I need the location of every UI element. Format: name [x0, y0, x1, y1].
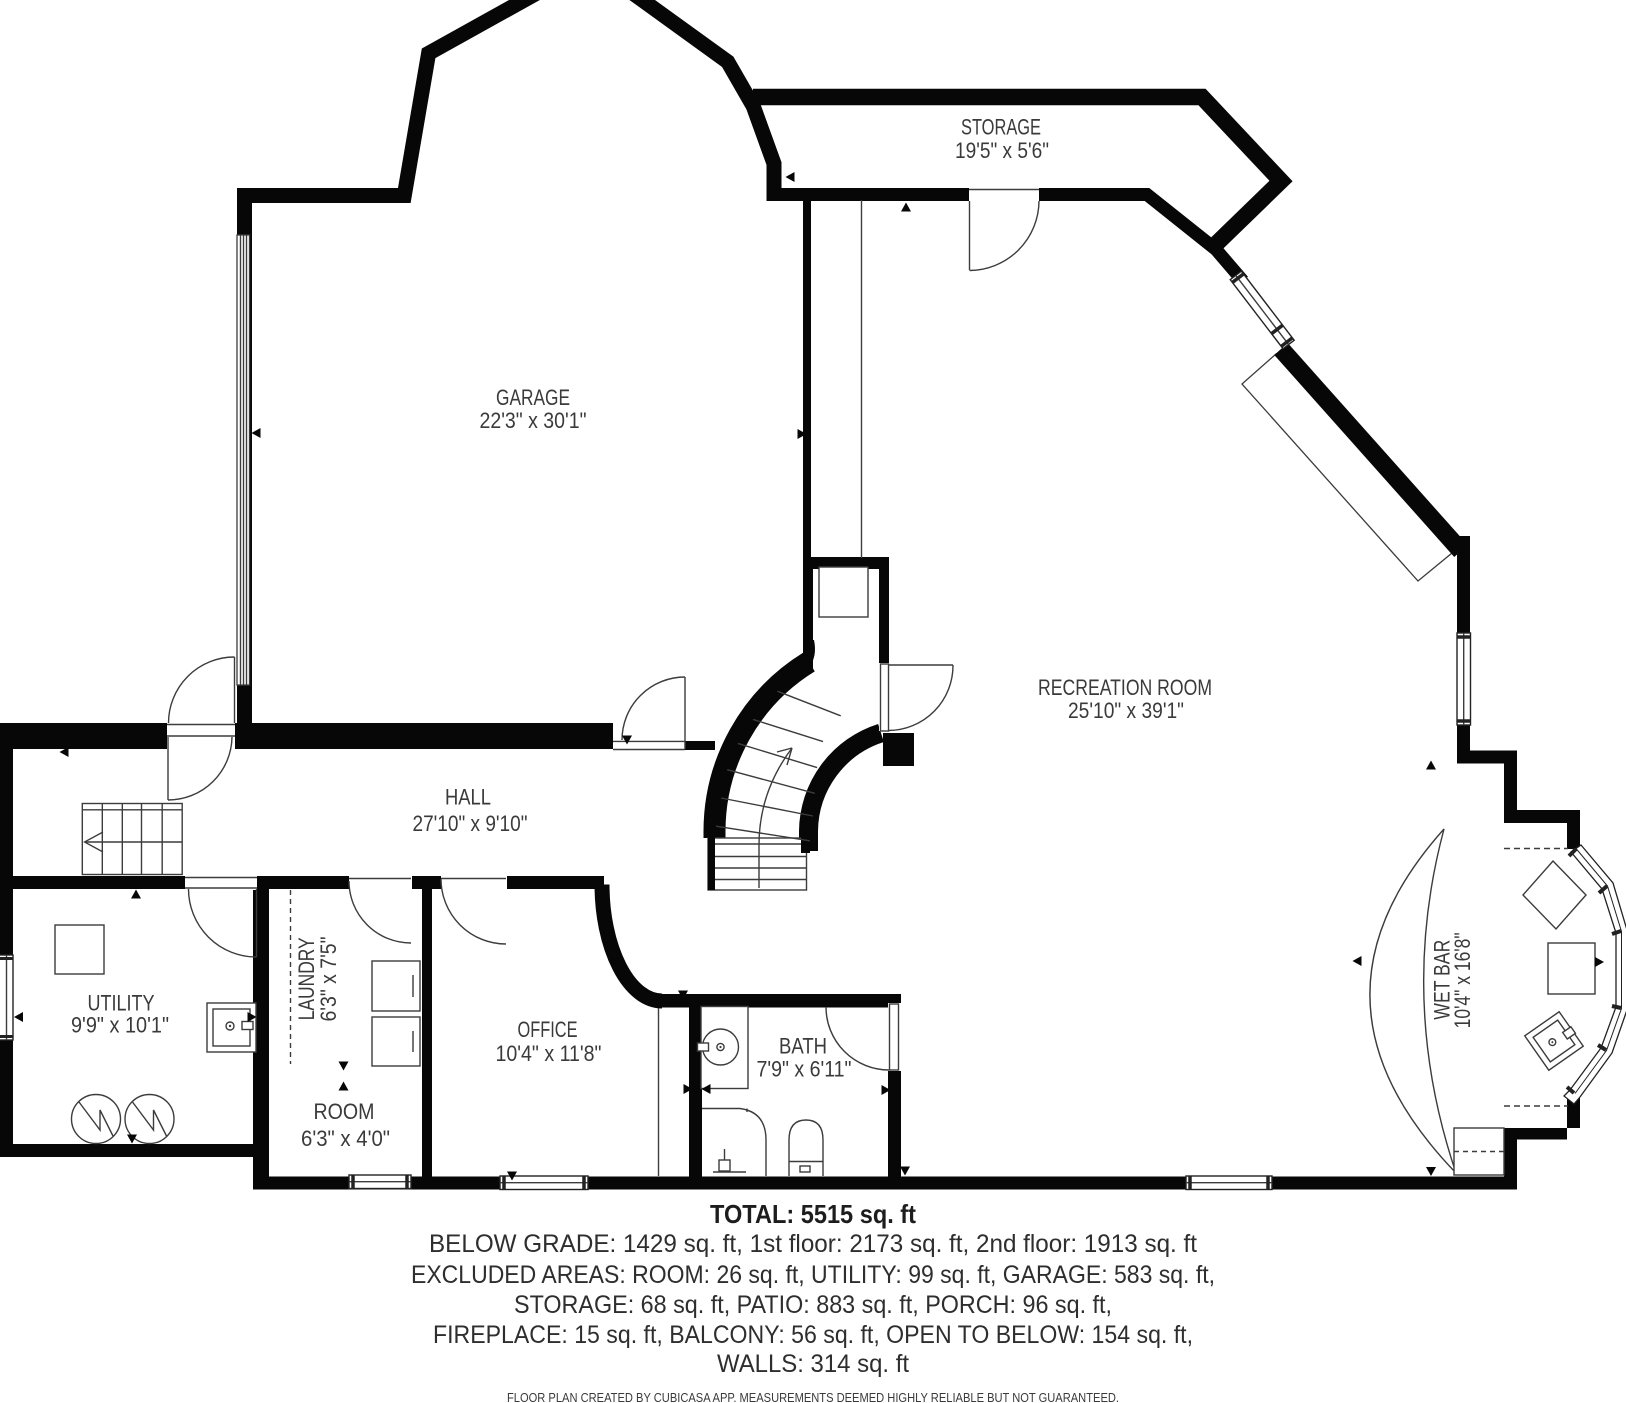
- svg-text:27'10" x 9'10": 27'10" x 9'10": [413, 811, 528, 836]
- svg-text:TOTAL: 5515 sq. ft: TOTAL: 5515 sq. ft: [710, 1199, 916, 1229]
- svg-text:RECREATION ROOM: RECREATION ROOM: [1038, 675, 1212, 700]
- svg-text:19'5" x 5'6": 19'5" x 5'6": [955, 138, 1049, 163]
- svg-text:6'3" x 7'5": 6'3" x 7'5": [316, 937, 341, 1022]
- svg-text:10'4" x 16'8": 10'4" x 16'8": [1450, 932, 1475, 1028]
- svg-text:HALL: HALL: [445, 785, 491, 810]
- svg-text:EXCLUDED AREAS: ROOM: 26 sq. f: EXCLUDED AREAS: ROOM: 26 sq. ft, UTILITY…: [411, 1261, 1215, 1289]
- svg-text:STORAGE: STORAGE: [961, 115, 1041, 140]
- svg-text:22'3" x 30'1": 22'3" x 30'1": [480, 408, 587, 433]
- svg-text:7'9" x 6'11": 7'9" x 6'11": [757, 1057, 852, 1082]
- svg-text:BELOW GRADE: 1429 sq. ft, 1st: BELOW GRADE: 1429 sq. ft, 1st floor: 217…: [429, 1230, 1197, 1258]
- svg-text:GARAGE: GARAGE: [496, 385, 570, 410]
- svg-text:ROOM: ROOM: [314, 1099, 375, 1124]
- svg-text:6'3" x 4'0": 6'3" x 4'0": [301, 1126, 390, 1151]
- svg-text:25'10" x 39'1": 25'10" x 39'1": [1068, 698, 1184, 723]
- svg-text:FIREPLACE: 15 sq. ft, BALCONY:: FIREPLACE: 15 sq. ft, BALCONY: 56 sq. ft…: [433, 1321, 1193, 1349]
- svg-text:10'4" x 11'8": 10'4" x 11'8": [496, 1041, 602, 1066]
- svg-text:OFFICE: OFFICE: [518, 1017, 578, 1042]
- svg-text:STORAGE: 68 sq. ft, PATIO: 883: STORAGE: 68 sq. ft, PATIO: 883 sq. ft, P…: [514, 1291, 1112, 1319]
- svg-text:WALLS: 314 sq. ft: WALLS: 314 sq. ft: [717, 1350, 909, 1378]
- svg-text:FLOOR PLAN CREATED BY CUBICASA: FLOOR PLAN CREATED BY CUBICASA APP. MEAS…: [507, 1391, 1119, 1403]
- svg-text:9'9" x 10'1": 9'9" x 10'1": [71, 1013, 169, 1038]
- svg-text:BATH: BATH: [779, 1034, 827, 1059]
